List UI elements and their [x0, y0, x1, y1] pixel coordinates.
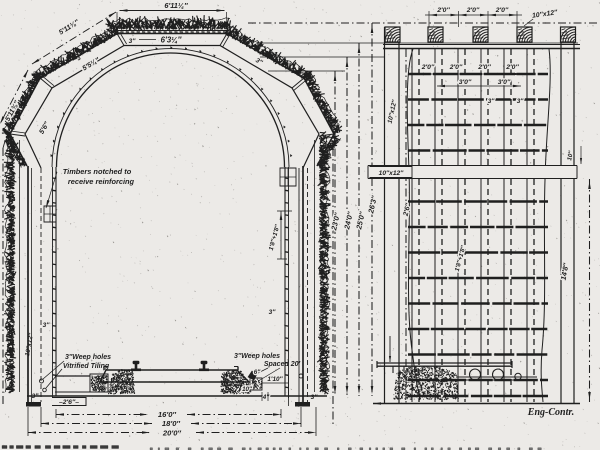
svg-text:3″: 3″ [311, 394, 319, 401]
svg-text:2′0″: 2′0″ [436, 7, 450, 14]
svg-text:5′11⅛″: 5′11⅛″ [58, 19, 81, 37]
svg-text:2′0″: 2′0″ [477, 64, 491, 71]
svg-text:10″x12″: 10″x12″ [532, 9, 559, 20]
svg-text:18′0″: 18′0″ [162, 419, 180, 428]
svg-text:3″Weep holes: 3″Weep holes [234, 353, 280, 360]
svg-text:24′0″: 24′0″ [342, 210, 355, 231]
svg-text:23′0″: 23′0″ [329, 211, 342, 232]
svg-text:2′0″: 2′0″ [505, 64, 519, 71]
svg-text:Vitrified Tiling: Vitrified Tiling [63, 363, 110, 370]
svg-text:Spaced 20′: Spaced 20′ [264, 361, 301, 368]
svg-text:10″x12″: 10″x12″ [24, 332, 35, 357]
svg-text:3″: 3″ [254, 57, 264, 67]
svg-text:10″x12″: 10″x12″ [379, 170, 404, 177]
svg-text:Eng-Contr.: Eng-Contr. [527, 407, 574, 418]
svg-text:2′6″: 2′6″ [403, 202, 413, 218]
svg-text:1′8″+1′8″: 1′8″+1′8″ [454, 244, 468, 272]
svg-text:6′11¼″: 6′11¼″ [164, 1, 188, 10]
svg-text:2′0″: 2′0″ [449, 64, 463, 71]
svg-text:3″: 3″ [269, 309, 277, 316]
svg-text:6″: 6″ [254, 369, 261, 376]
svg-text:26′3″: 26′3″ [366, 194, 379, 215]
svg-text:4″: 4″ [262, 394, 270, 401]
svg-text:3″: 3″ [488, 98, 496, 105]
svg-text:10″x12″: 10″x12″ [387, 98, 399, 124]
svg-text:2′0″: 2′0″ [495, 7, 509, 14]
svg-text:2′0″: 2′0″ [466, 7, 480, 14]
svg-text:3″: 3″ [129, 38, 137, 45]
svg-text:6′3¼″: 6′3¼″ [161, 36, 183, 45]
svg-text:20′0″: 20′0″ [162, 429, 181, 438]
svg-text:2′0″: 2′0″ [421, 64, 435, 71]
svg-text:5′6″: 5′6″ [38, 120, 51, 135]
svg-text:3′0″: 3′0″ [498, 79, 511, 86]
svg-text:3″: 3″ [517, 98, 525, 105]
svg-text:1′8″+1′8″: 1′8″+1′8″ [268, 223, 282, 251]
svg-text:Timbers notched to: Timbers notched to [63, 167, 132, 176]
svg-text:receive reinforcing: receive reinforcing [68, 177, 135, 186]
svg-text:14′8″: 14′8″ [559, 262, 571, 281]
svg-text:3″Weep holes: 3″Weep holes [65, 354, 111, 361]
svg-text:16′0″: 16′0″ [158, 410, 176, 419]
svg-text:25′0″: 25′0″ [354, 210, 367, 231]
svg-text:3′0″: 3′0″ [459, 79, 472, 86]
svg-text:3″: 3″ [43, 322, 51, 329]
svg-text:10″: 10″ [242, 386, 253, 393]
svg-text:3″: 3″ [32, 393, 40, 400]
svg-text:1′10″: 1′10″ [267, 376, 283, 383]
svg-text:–2′6″–: –2′6″– [59, 399, 79, 406]
